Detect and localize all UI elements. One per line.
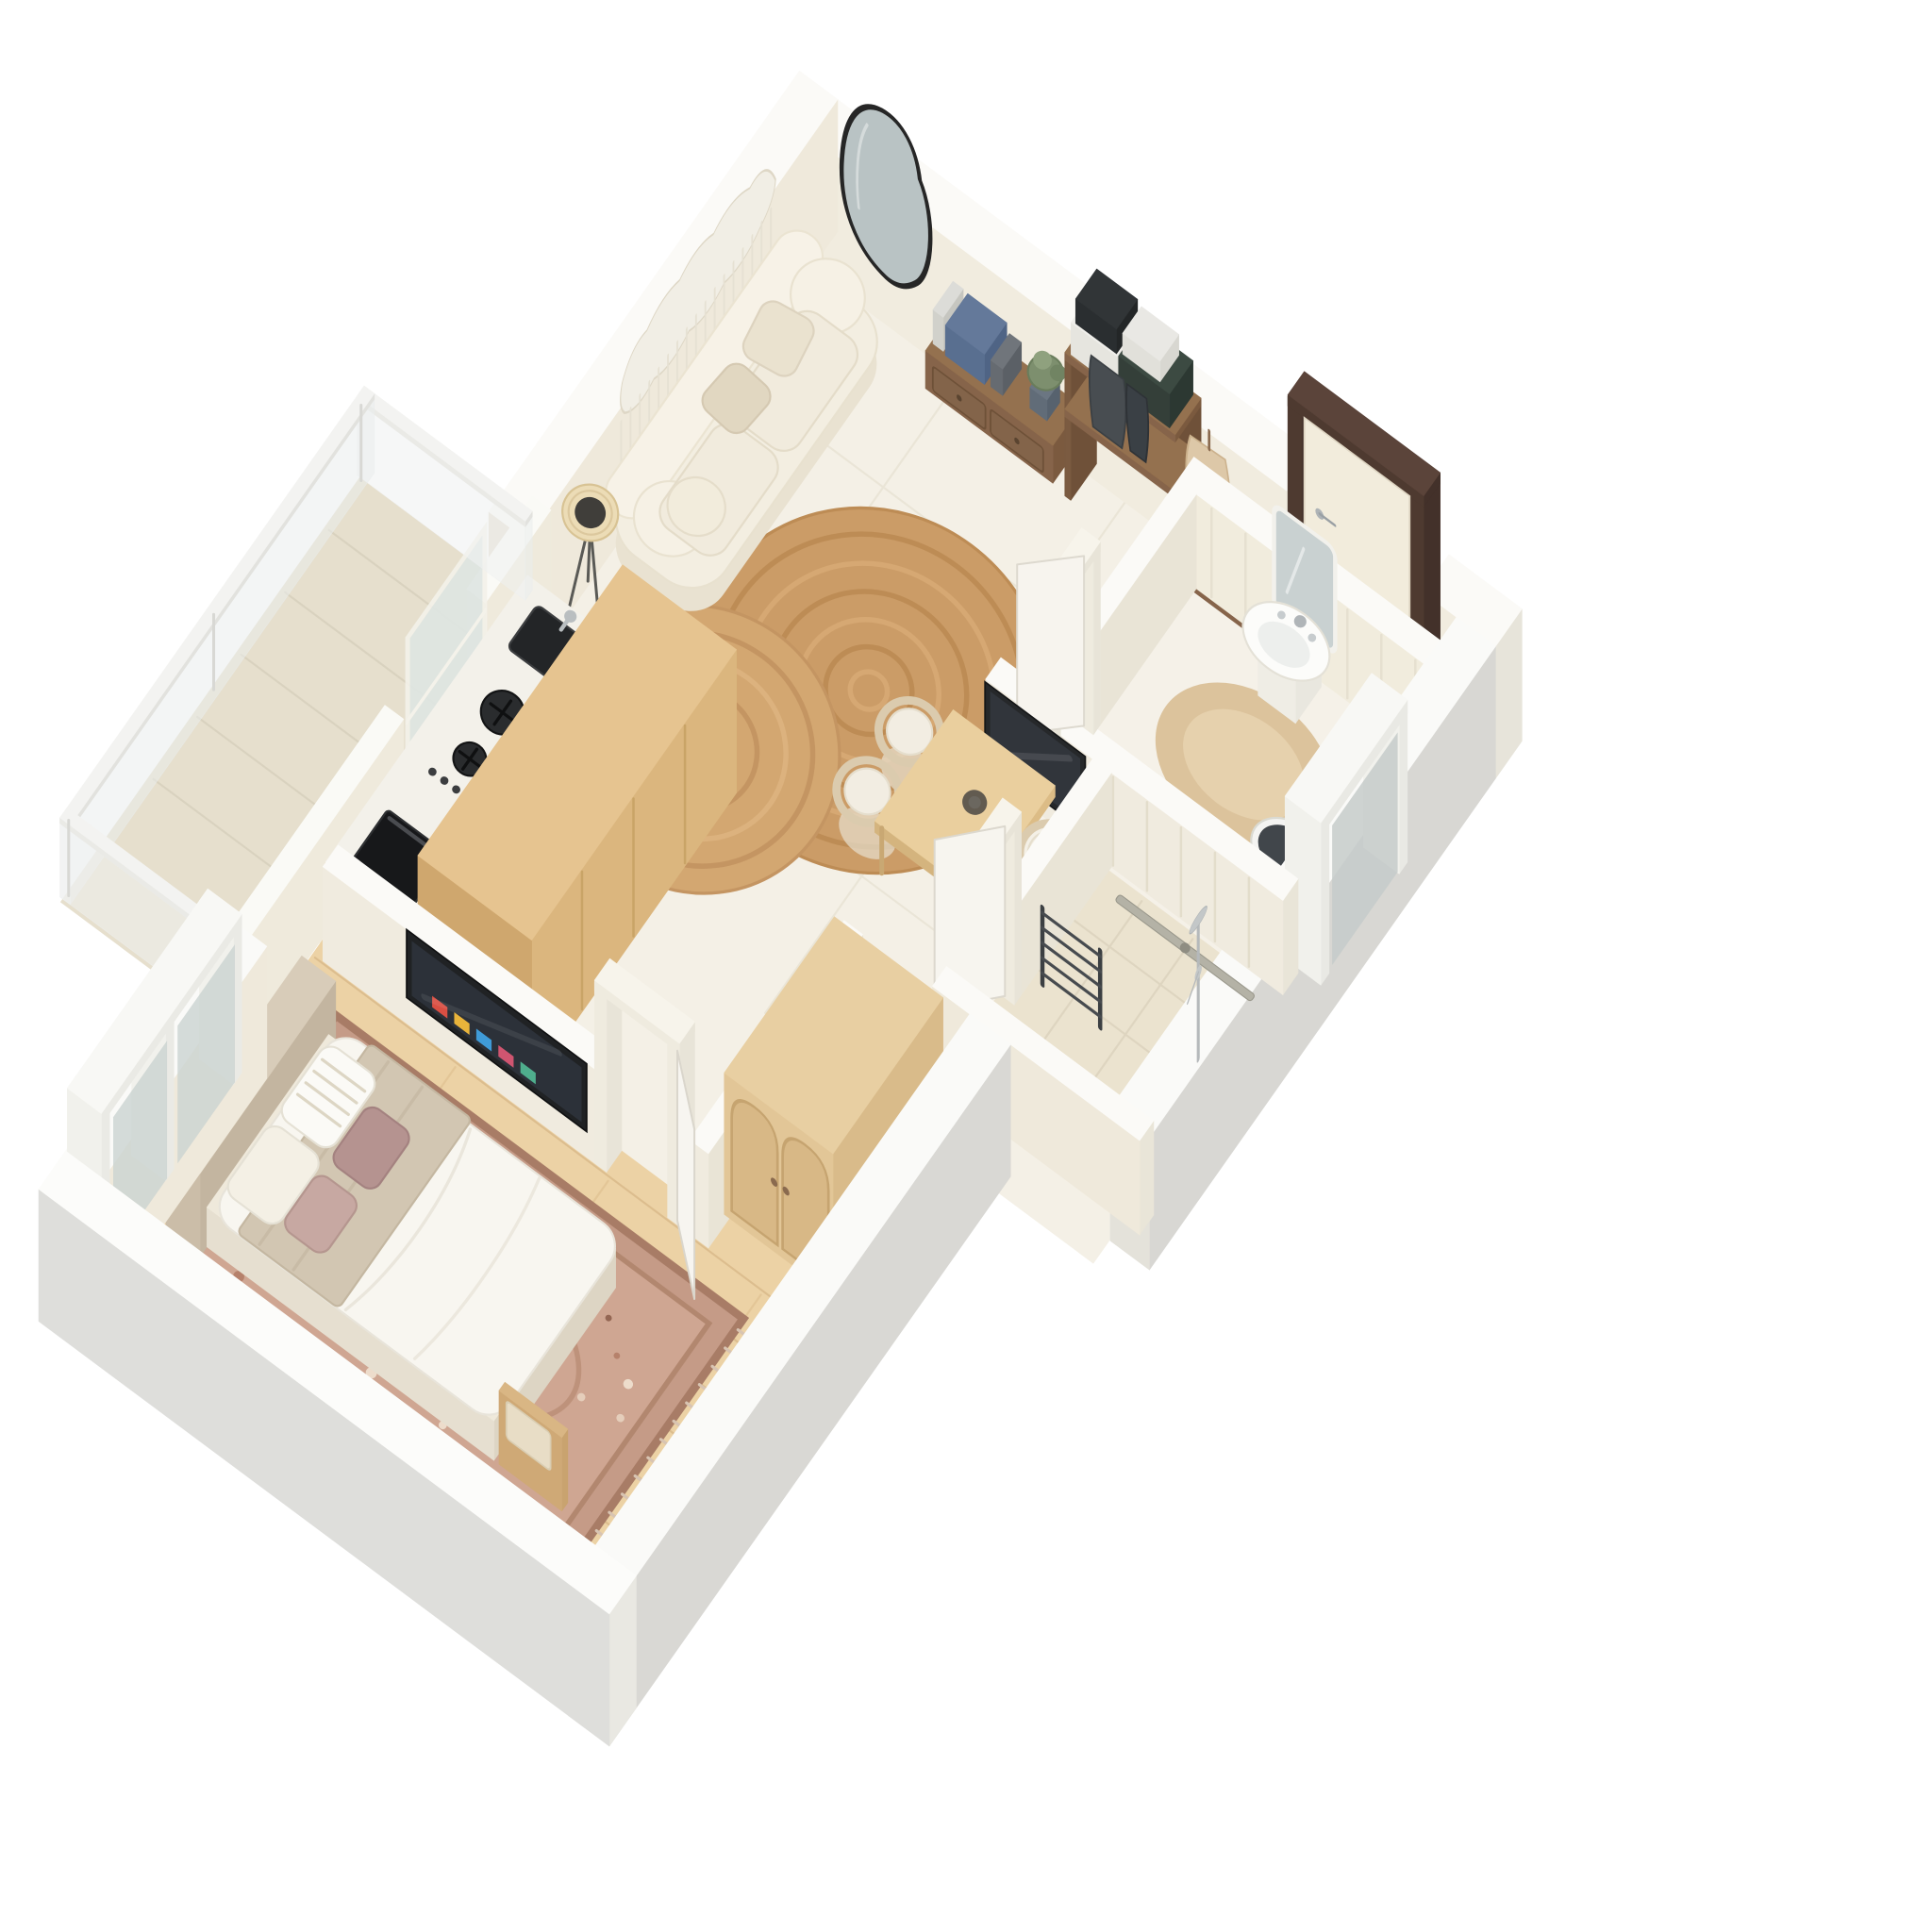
bathroom-door-leaf (1017, 556, 1084, 734)
floorplan-3d-render (0, 0, 1932, 1932)
apartment-floorplan-3d (0, 0, 1932, 1932)
